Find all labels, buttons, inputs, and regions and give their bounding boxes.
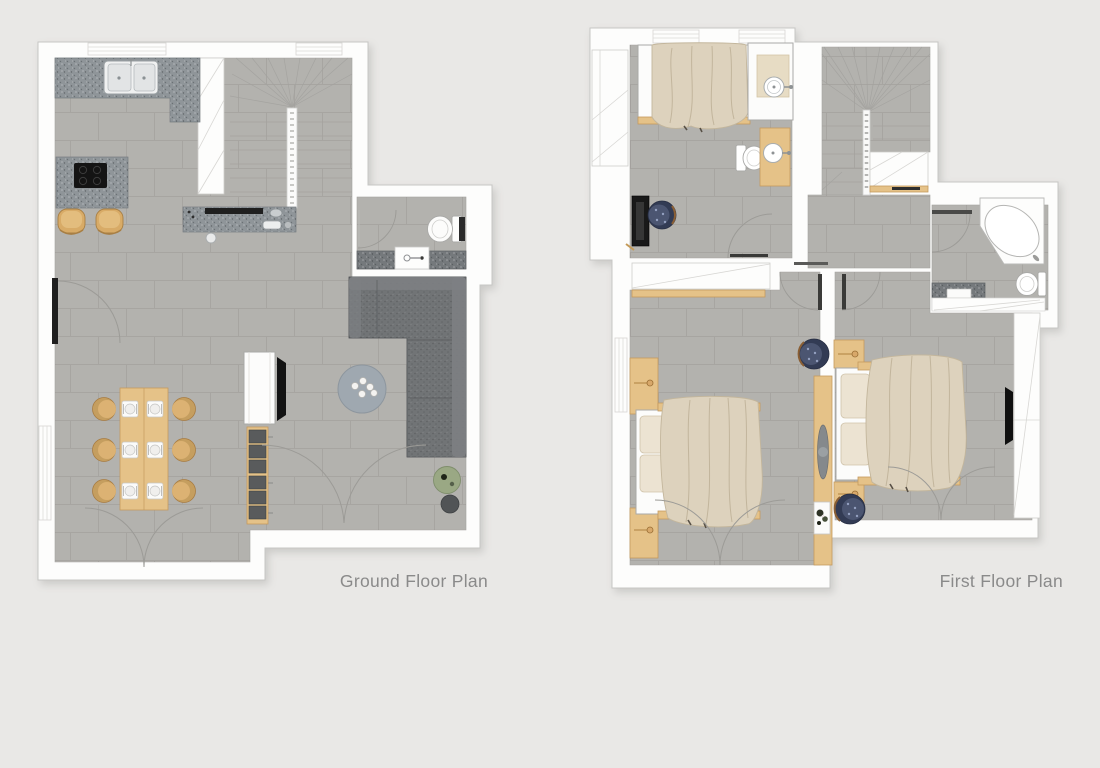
ff-stair-railing xyxy=(863,110,870,195)
gf-wc xyxy=(357,197,466,269)
ff-desk-chair xyxy=(648,201,676,229)
ground-floor-label: Ground Floor Plan xyxy=(330,572,488,591)
gf-tv xyxy=(277,357,286,421)
ff-built-in-wardrobe xyxy=(1014,313,1040,518)
ff-left-closet xyxy=(592,50,628,166)
ff-understair-closet xyxy=(870,152,928,192)
floor-plan-sheet: Ground Floor Plan First Floor Plan xyxy=(0,0,1100,768)
ff-armchair xyxy=(835,494,865,524)
ff-tv xyxy=(1005,387,1013,445)
gf-double-sink xyxy=(104,58,158,94)
gf-understair-closet xyxy=(198,58,224,194)
ff-bed3 xyxy=(836,355,966,492)
gf-side-table xyxy=(441,495,459,513)
gf-counter-stool xyxy=(206,233,216,243)
ff-wood-vanity xyxy=(760,128,791,186)
ff-bed1 xyxy=(638,43,750,132)
gf-kitchen-island xyxy=(56,157,128,208)
gf-wc-toilet xyxy=(428,216,466,242)
ff-bed2 xyxy=(636,396,762,528)
ff-basin-platform xyxy=(748,43,793,120)
plans-canvas xyxy=(0,0,1100,768)
ground-floor-plan xyxy=(38,42,492,580)
gf-plant xyxy=(434,467,461,494)
gf-tv-cabinet xyxy=(244,352,286,424)
first-floor-plan xyxy=(590,28,1058,588)
ff-landing-lintel xyxy=(794,262,828,265)
gf-stair-railing xyxy=(287,108,297,208)
gf-hob xyxy=(74,163,107,188)
ff-bathroom-toilet xyxy=(1016,272,1046,296)
ff-wardrobe-column xyxy=(814,376,832,565)
ff-armchair xyxy=(799,339,829,369)
ff-nightstand xyxy=(630,508,658,558)
ff-nightstand xyxy=(630,358,658,414)
ff-bedroom2-closet xyxy=(632,263,770,297)
gf-coffee-table xyxy=(338,365,386,413)
first-floor-label: First Floor Plan xyxy=(905,572,1063,591)
